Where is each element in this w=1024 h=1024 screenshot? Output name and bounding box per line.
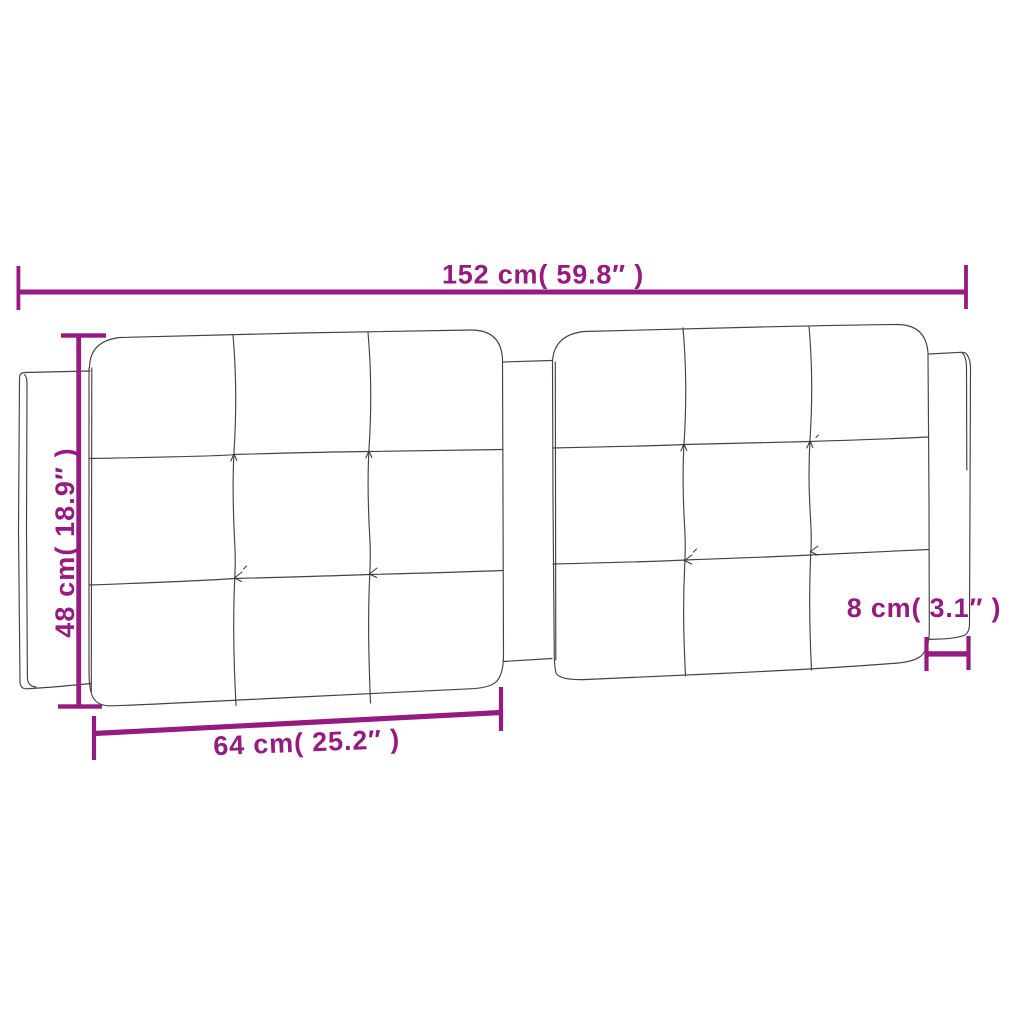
svg-text:48 cm( 18.9″ ): 48 cm( 18.9″ ) [50,447,80,637]
svg-text:8 cm( 3.1″ ): 8 cm( 3.1″ ) [847,593,1002,623]
svg-text:152 cm( 59.8″ ): 152 cm( 59.8″ ) [442,260,644,290]
